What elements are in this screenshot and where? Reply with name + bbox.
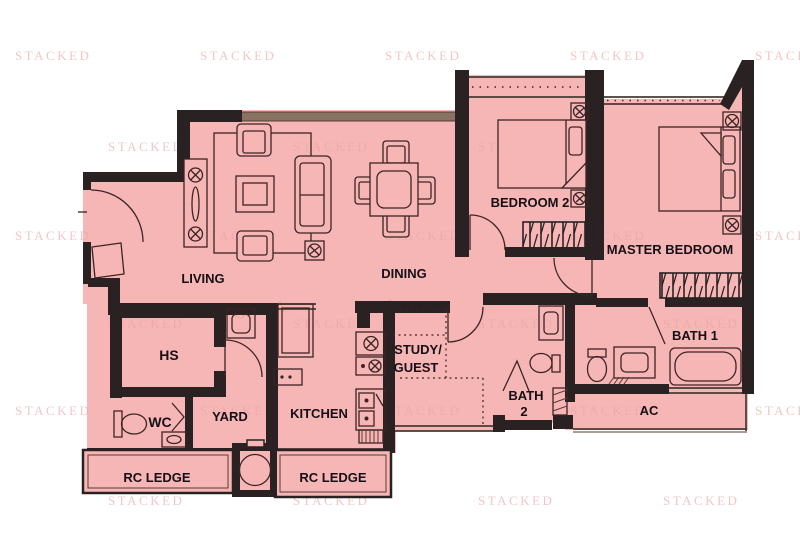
watermark: STACKED <box>755 403 800 418</box>
watermark: STACKED <box>15 228 91 243</box>
watermark: STACKED <box>570 403 646 418</box>
watermark: STACKED <box>570 48 646 63</box>
bath1-floor <box>565 293 753 393</box>
watermark: STACKED <box>663 493 739 508</box>
room-label-bedroom2: BEDROOM 2 <box>491 195 570 210</box>
watermark: STACKED <box>108 493 184 508</box>
dining-window-band <box>240 112 457 121</box>
master-right-wall <box>742 60 754 394</box>
floorplan-page: STACKED STACKED STACKED STACKED STACKED … <box>0 0 800 540</box>
coffee-table <box>236 176 274 212</box>
bath1-bottom-wall <box>573 384 669 394</box>
room-label-living: LIVING <box>181 271 224 286</box>
bath2-corner-wall <box>553 415 573 429</box>
watermark: STACKED <box>108 139 184 154</box>
hs-left-wall <box>110 307 122 398</box>
room-label-bath2-number: 2 <box>520 404 527 419</box>
room-label-kitchen: KITCHEN <box>290 406 348 421</box>
hs-bottom-wall <box>110 387 226 397</box>
room-label-guest: GUEST <box>394 360 439 375</box>
room-label-yard: YARD <box>212 409 248 424</box>
sofa <box>295 156 331 233</box>
shoe-cabinet <box>92 243 124 278</box>
master-wardrobe <box>660 273 743 298</box>
entry-left-wall <box>83 172 91 190</box>
room-label-dining: DINING <box>381 266 427 281</box>
bedroom2-wardrobe <box>523 222 593 248</box>
hs-top-wall <box>110 307 226 318</box>
room-label-rc-ledge-left: RC LEDGE <box>123 470 191 485</box>
room-label-study: STUDY/ <box>394 342 442 357</box>
washing-area-box <box>232 440 277 497</box>
bath2-bottom-wall <box>498 420 552 430</box>
watermark: STACKED <box>755 228 800 243</box>
watermark: STACKED <box>755 48 800 63</box>
armchair-bottom <box>237 231 273 261</box>
room-label-ac: AC <box>640 403 659 418</box>
master-south-wall <box>665 298 744 307</box>
watermark: STACKED <box>478 316 554 331</box>
watermark: STACKED <box>293 139 369 154</box>
hs-right-wall <box>214 371 226 397</box>
side-table-fan-icon <box>305 241 324 260</box>
room-label-bath2: BATH <box>508 388 543 403</box>
hs-right-wall <box>214 307 226 347</box>
watermark: STACKED <box>15 48 91 63</box>
watermark: STACKED <box>385 403 461 418</box>
kitchen-left-wall <box>266 303 278 449</box>
watermark: STACKED <box>478 493 554 508</box>
watermark: STACKED <box>385 48 461 63</box>
room-label-wc: WC <box>148 414 171 430</box>
armchair-top <box>237 124 271 156</box>
watermark: STACKED <box>200 48 276 63</box>
entry-left-wall <box>83 242 91 284</box>
tv-console <box>184 159 207 247</box>
room-label-bath1: BATH 1 <box>672 328 718 343</box>
room-label-hs: HS <box>159 347 178 363</box>
entry-top-wall <box>83 172 185 182</box>
floorplan-drawing: STACKED STACKED STACKED STACKED STACKED … <box>0 0 800 540</box>
room-label-rc-ledge-right: RC LEDGE <box>299 470 367 485</box>
master-south-wall <box>596 298 648 307</box>
watermark: STACKED <box>15 403 91 418</box>
dining-bedroom2-wall <box>455 100 469 257</box>
room-label-master-bedroom: MASTER BEDROOM <box>607 242 733 257</box>
kitchen-top-stub <box>357 301 370 328</box>
